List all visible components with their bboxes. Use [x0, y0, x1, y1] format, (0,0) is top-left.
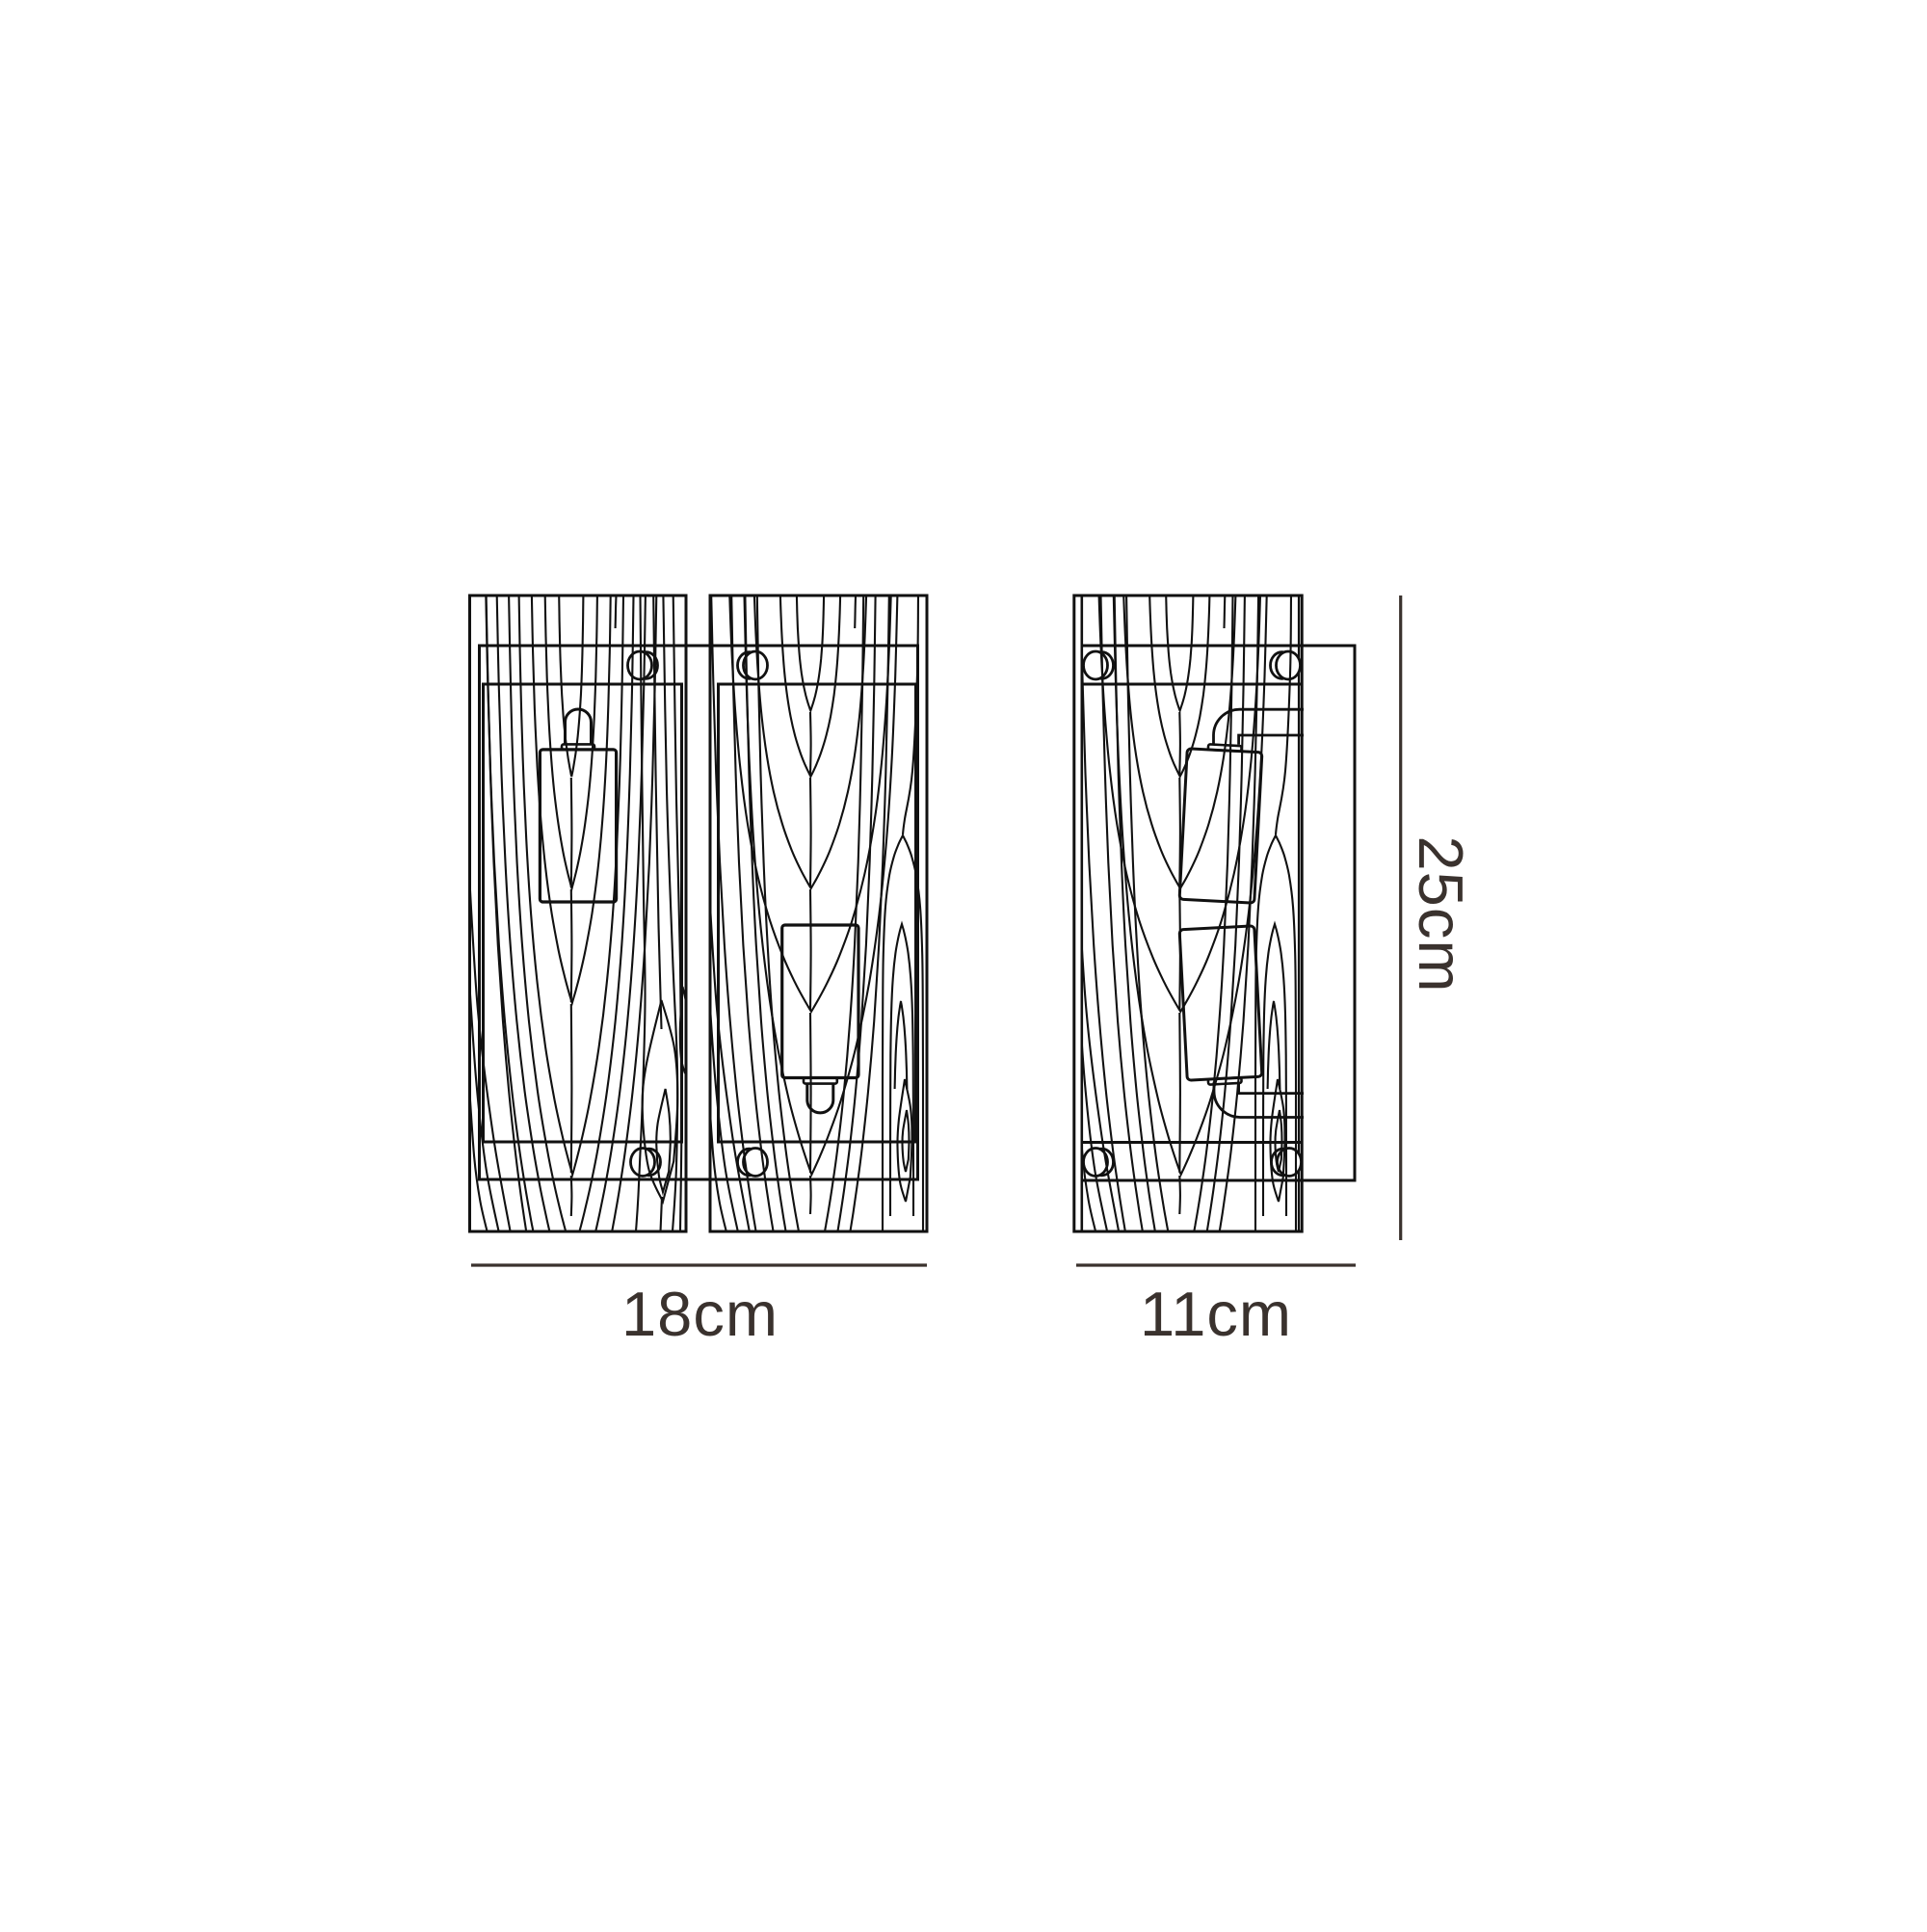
svg-text:11cm: 11cm [1140, 1279, 1292, 1349]
svg-text:18cm: 18cm [621, 1279, 779, 1349]
svg-text:25cm: 25cm [1406, 836, 1476, 993]
